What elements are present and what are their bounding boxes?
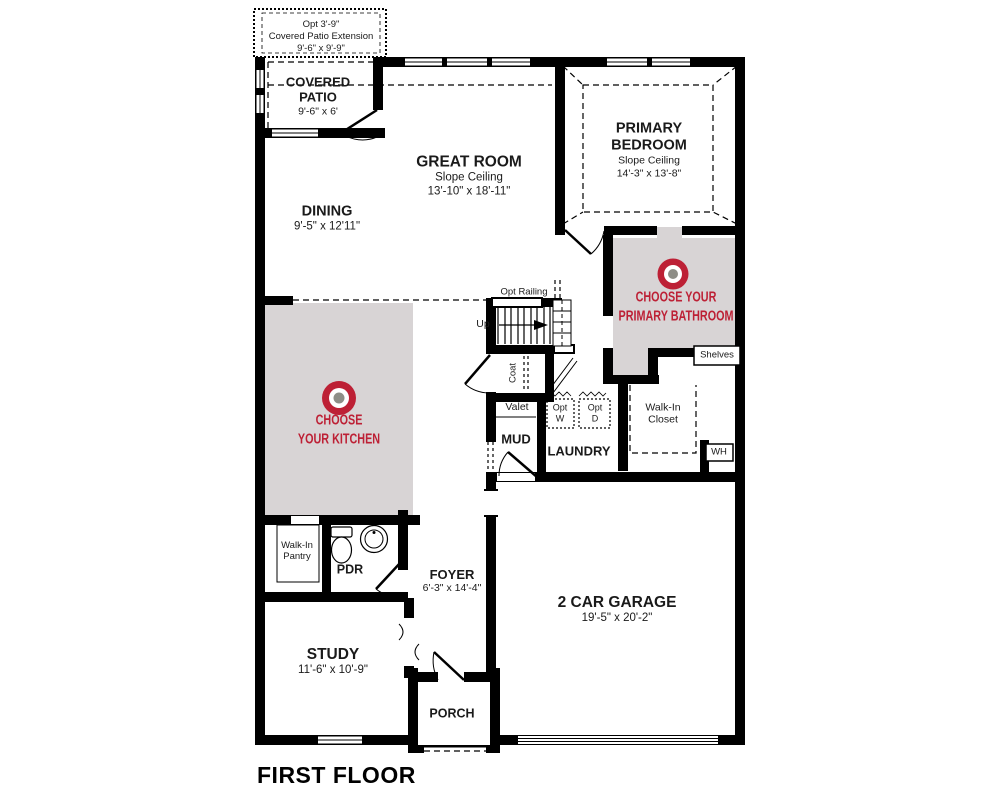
laundry-label: LAUNDRY	[547, 443, 610, 458]
opt-patio-extension-label: Opt 3'-9" Covered Patio Extension 9'-6" …	[269, 19, 374, 55]
kitchen-choice-icon[interactable]	[322, 381, 356, 415]
primary-bedroom-label: PRIMARY BEDROOM Slope Ceiling 14'-3" x 1…	[597, 121, 702, 180]
shelves-label: Shelves	[700, 349, 734, 360]
valet-label: Valet	[505, 401, 528, 413]
toilet-bowl	[332, 537, 352, 563]
walk-in-closet-label: Walk-In Closet	[645, 402, 680, 427]
floor-plan-drawing	[0, 0, 1000, 800]
mud-label: MUD	[501, 431, 531, 446]
dining-label: DINING 9'-5" x 12'11"	[294, 204, 360, 235]
pdr-label: PDR	[337, 563, 363, 578]
great-room-label: GREAT ROOM Slope Ceiling 13'-10" x 18'-1…	[416, 153, 522, 198]
up-label: Up	[476, 318, 489, 330]
choose-kitchen-cta[interactable]: CHOOSE YOUR KITCHEN	[298, 411, 380, 448]
foyer-label: FOYER 6'-3" x 14'-4"	[423, 567, 482, 595]
opt-dryer-label: OptD	[588, 402, 603, 423]
opt-washer-label: OptW	[553, 402, 568, 423]
study-label: STUDY 11'-6" x 10'-9"	[298, 646, 368, 678]
floor-plan-page: Opt 3'-9" Covered Patio Extension 9'-6" …	[0, 0, 1000, 800]
choose-primary-bathroom-cta[interactable]: CHOOSE YOUR PRIMARY BATHROOM	[619, 288, 734, 325]
garage-label: 2 CAR GARAGE 19'-5" x 20'-2"	[558, 594, 677, 626]
walk-in-pantry-label: Walk-In Pantry	[281, 540, 313, 562]
wh-label: WH	[711, 446, 727, 457]
opt-railing-label: Opt Railing	[501, 286, 548, 297]
coat-label: Coat	[507, 363, 518, 383]
covered-patio-label: COVERED PATIO 9'-6" x 6'	[274, 74, 362, 117]
page-title: FIRST FLOOR	[257, 762, 416, 789]
toilet-tank	[331, 527, 352, 537]
bathroom-choice-icon[interactable]	[658, 259, 689, 290]
porch-label: PORCH	[429, 707, 474, 722]
